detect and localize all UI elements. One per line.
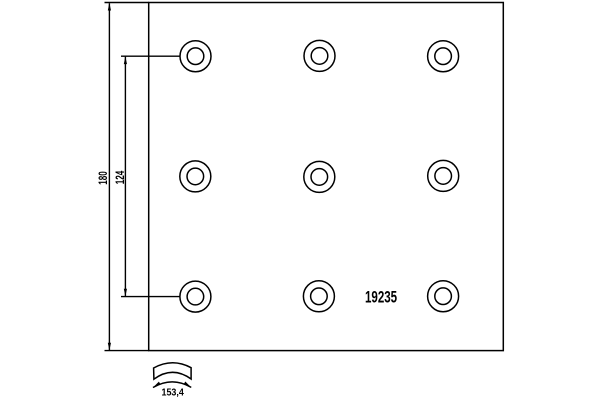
- svg-text:180: 180: [98, 171, 111, 185]
- svg-text:153,4: 153,4: [162, 387, 185, 397]
- svg-text:124: 124: [115, 170, 128, 184]
- svg-text:19235: 19235: [365, 288, 397, 307]
